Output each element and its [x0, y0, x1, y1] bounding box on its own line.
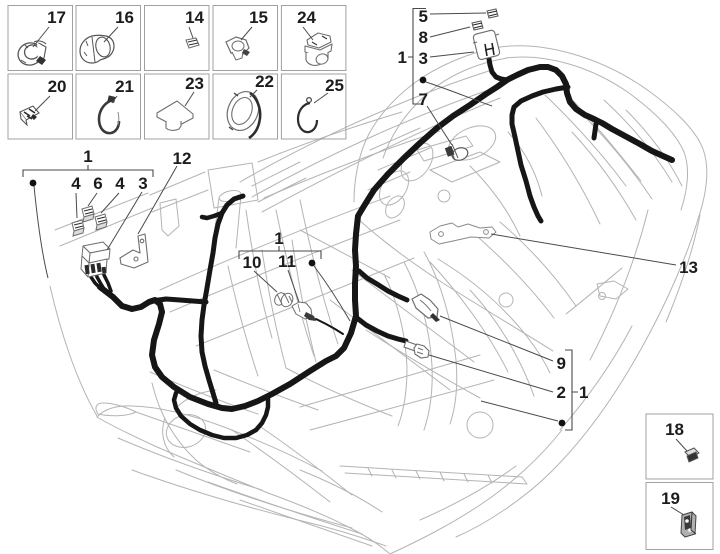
svg-text:17: 17	[47, 8, 66, 27]
svg-text:3: 3	[138, 174, 147, 193]
svg-text:9: 9	[557, 354, 566, 373]
svg-text:25: 25	[325, 76, 344, 95]
svg-text:5: 5	[419, 7, 428, 26]
svg-text:15: 15	[249, 8, 268, 27]
svg-text:21: 21	[115, 77, 134, 96]
svg-text:1: 1	[83, 147, 92, 166]
svg-text:1: 1	[579, 383, 588, 402]
svg-text:7: 7	[419, 90, 428, 109]
svg-text:24: 24	[297, 8, 316, 27]
svg-text:8: 8	[419, 28, 428, 47]
svg-text:12: 12	[173, 149, 192, 168]
svg-text:4: 4	[71, 174, 81, 193]
svg-text:1: 1	[274, 229, 283, 248]
svg-text:11: 11	[278, 252, 296, 271]
svg-text:13: 13	[679, 258, 698, 277]
svg-text:3: 3	[419, 49, 428, 68]
svg-text:19: 19	[661, 489, 680, 508]
svg-text:4: 4	[115, 174, 125, 193]
svg-text:22: 22	[255, 72, 274, 91]
svg-text:16: 16	[115, 8, 134, 27]
svg-text:20: 20	[48, 77, 67, 96]
svg-text:2: 2	[557, 383, 566, 402]
svg-text:18: 18	[665, 420, 684, 439]
svg-text:23: 23	[185, 74, 204, 93]
svg-text:10: 10	[243, 253, 262, 272]
svg-text:14: 14	[185, 8, 204, 27]
svg-text:1: 1	[398, 48, 407, 67]
svg-text:6: 6	[93, 174, 102, 193]
